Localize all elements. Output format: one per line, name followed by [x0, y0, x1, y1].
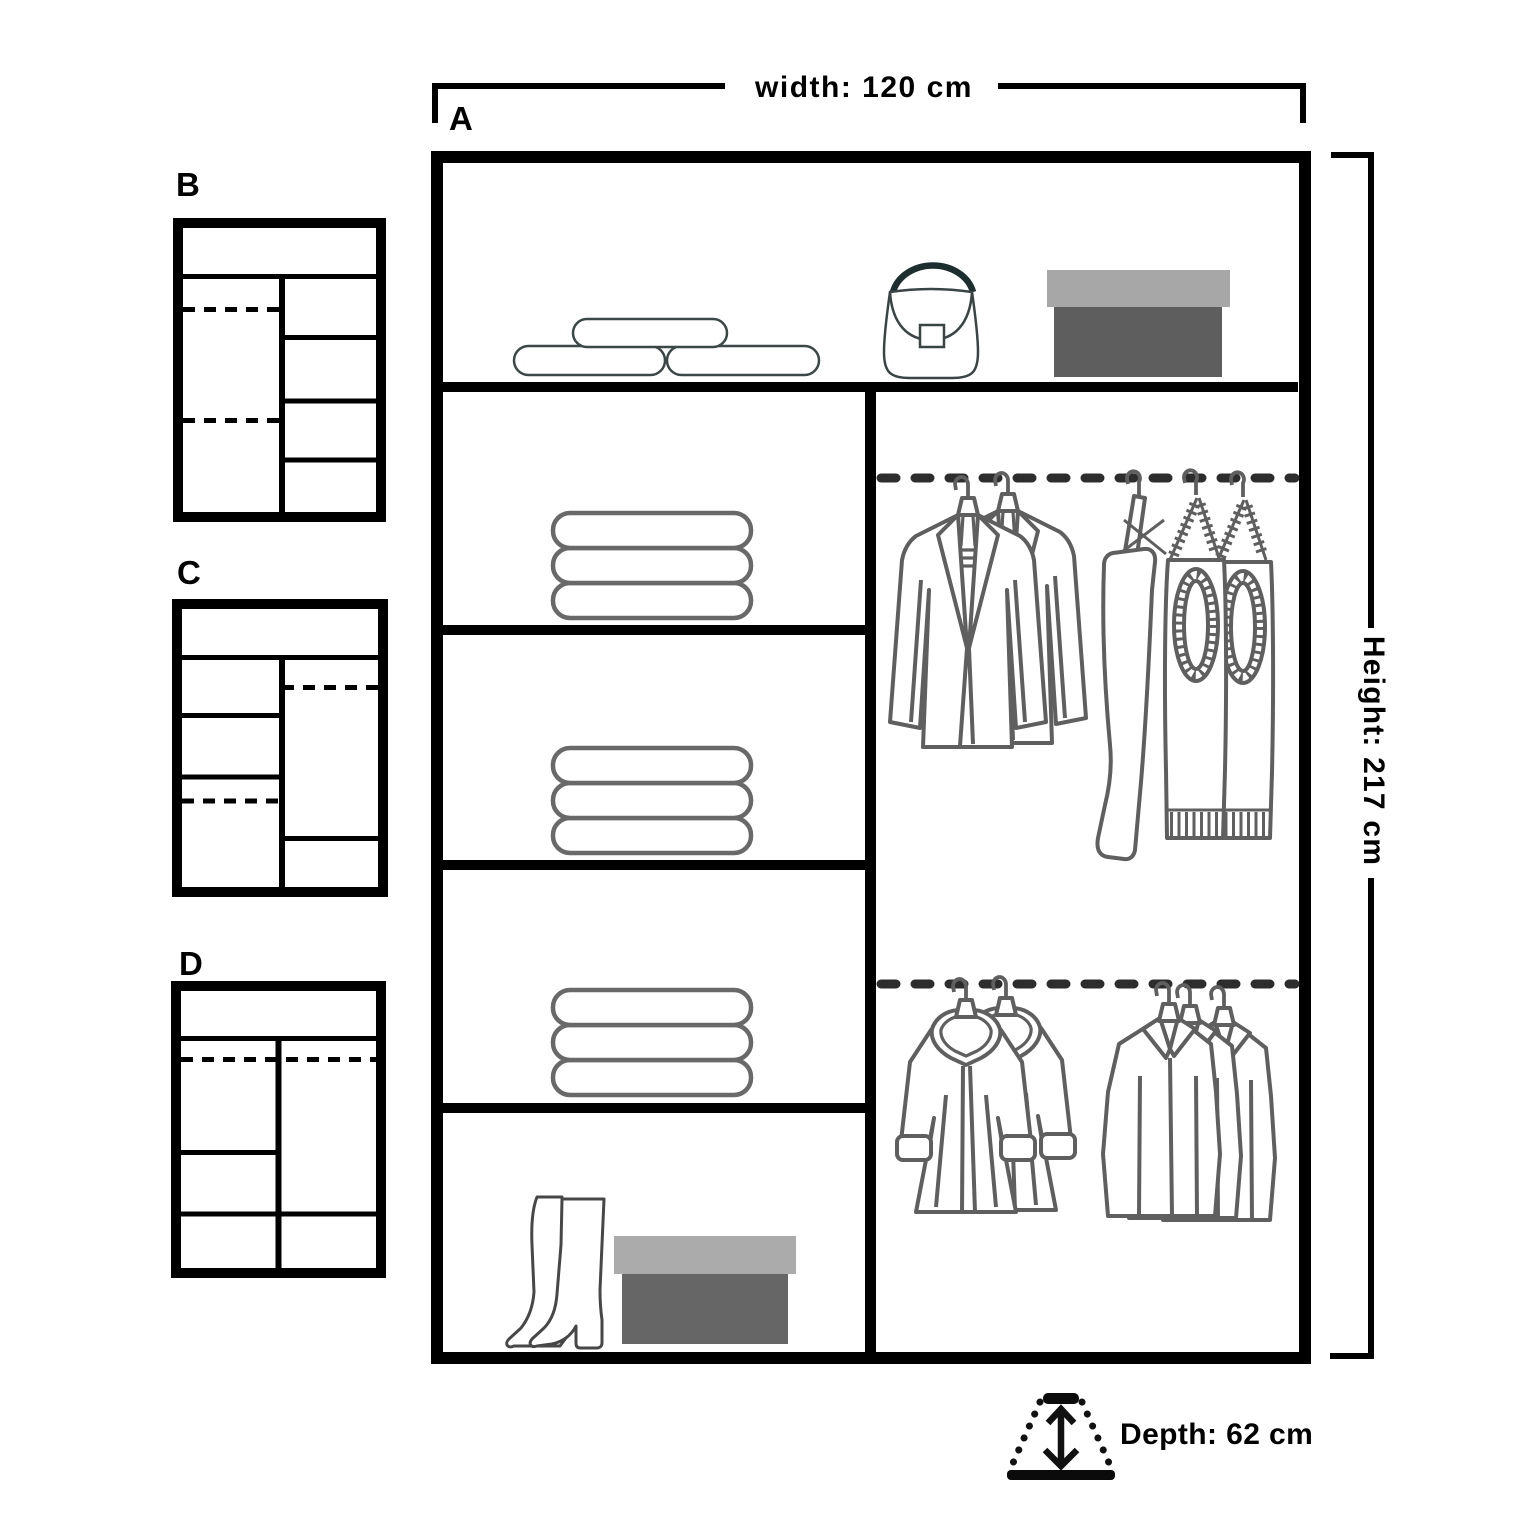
svg-text:C: C [177, 554, 201, 591]
svg-text:D: D [179, 945, 203, 982]
svg-text:Depth: 62 cm: Depth: 62 cm [1120, 1418, 1313, 1451]
svg-text:B: B [176, 166, 200, 203]
svg-text:width: 120 cm: width: 120 cm [754, 71, 973, 104]
svg-text:A: A [449, 100, 473, 137]
svg-text:Height: 217 cm: Height: 217 cm [1357, 636, 1390, 866]
